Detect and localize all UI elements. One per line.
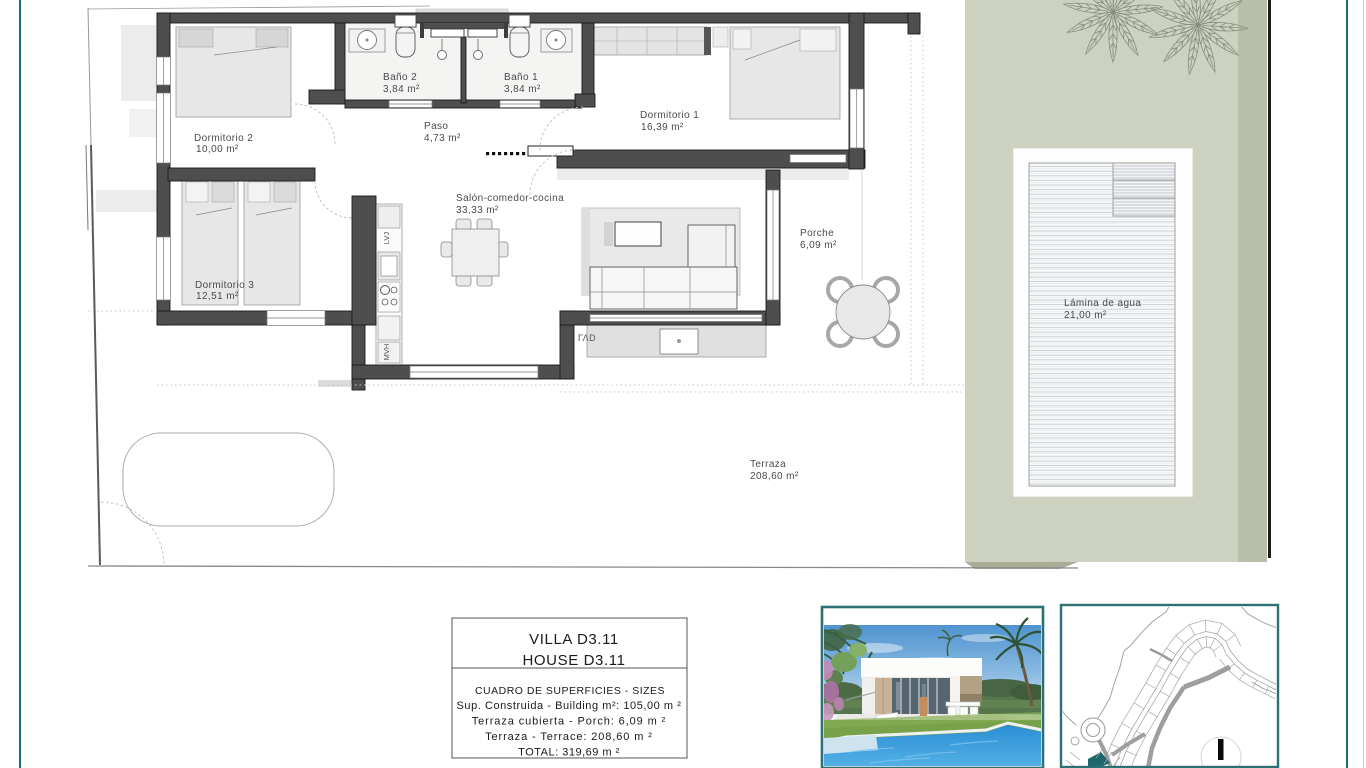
svg-text:12,51 m²: 12,51 m² [196,291,239,302]
svg-text:CUADRO DE SUPERFICIES - SIZES: CUADRO DE SUPERFICIES - SIZES [475,685,665,697]
svg-text:Dormitorio 3: Dormitorio 3 [195,280,254,291]
svg-text:Sup. Construida - Building m²: Sup. Construida - Building m²: 105,00 m … [457,700,682,712]
svg-text:Terraza cubierta - Porch: 6,0: Terraza cubierta - Porch: 6,09 m ² [472,716,666,728]
svg-text:Baño 2: Baño 2 [383,72,417,83]
svg-text:Dormitorio 2: Dormitorio 2 [194,133,253,144]
svg-text:3,84 m²: 3,84 m² [504,84,541,95]
svg-text:6,09 m²: 6,09 m² [800,240,837,251]
svg-text:Porche: Porche [800,228,834,239]
svg-text:VILLA D3.11: VILLA D3.11 [529,631,619,648]
svg-text:TOTAL: 319,69 m ²: TOTAL: 319,69 m ² [518,747,620,759]
svg-text:Baño 1: Baño 1 [504,72,538,83]
svg-text:10,00 m²: 10,00 m² [196,144,239,155]
svg-text:HOUSE D3.11: HOUSE D3.11 [522,652,625,669]
svg-text:ΓΛD: ΓΛD [578,333,596,343]
svg-text:21,00 m²: 21,00 m² [1064,310,1107,321]
svg-text:Terraza - Terrace: 208,60 m ²: Terraza - Terrace: 208,60 m ² [485,731,653,743]
svg-text:Dormitorio 1: Dormitorio 1 [640,110,699,121]
svg-text:3,84 m²: 3,84 m² [383,84,420,95]
svg-text:Paso: Paso [424,121,448,132]
svg-text:Lámina de agua: Lámina de agua [1064,298,1141,309]
svg-text:16,39 m²: 16,39 m² [641,122,684,133]
svg-text:208,60 m²: 208,60 m² [750,471,799,482]
svg-text:4,73 m²: 4,73 m² [424,133,461,144]
svg-text:33,33 m²: 33,33 m² [456,205,499,216]
svg-text:Terraza: Terraza [750,459,786,470]
svg-text:LVJ: LVJ [382,232,391,245]
svg-text:Salón-comedor-cocina: Salón-comedor-cocina [456,193,564,204]
svg-text:MVH: MVH [382,344,391,361]
